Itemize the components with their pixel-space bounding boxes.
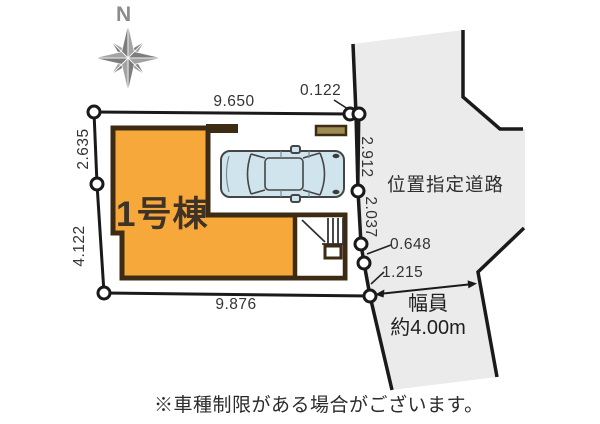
dim-right-lower: 2.037 [362, 189, 378, 245]
dim-right-small-lower: 1.215 [382, 264, 423, 282]
note-text: ※車種制限がある場合がございます。 [154, 390, 484, 417]
building-label: 1号棟 [116, 186, 208, 237]
dim-top-right: 0.122 [300, 82, 341, 100]
site-plan: N 9.650 0.122 2.635 4.122 2.912 2.037 0.… [0, 0, 600, 424]
dim-top: 9.650 [202, 94, 266, 110]
dim-left-lower: 4.122 [72, 218, 88, 274]
dim-left-upper: 2.635 [76, 121, 92, 177]
road-width-line1: 幅員 [376, 292, 480, 316]
road-width-label: 幅員 約4.00m [376, 292, 480, 340]
wall-segment-left [206, 124, 238, 133]
dim-right-upper: 2.912 [358, 129, 374, 185]
site-plan-drawing [0, 0, 600, 424]
car-top-view-icon [221, 146, 344, 202]
road-label: 位置指定道路 [387, 171, 504, 197]
compass-north-label: N [116, 3, 131, 27]
dim-right-small-upper: 0.648 [390, 236, 431, 254]
wall-segment-right [316, 126, 346, 135]
compass-rose-icon [94, 24, 162, 92]
road-width-line2: 約4.00m [376, 316, 480, 340]
dim-bottom: 9.876 [204, 297, 268, 313]
